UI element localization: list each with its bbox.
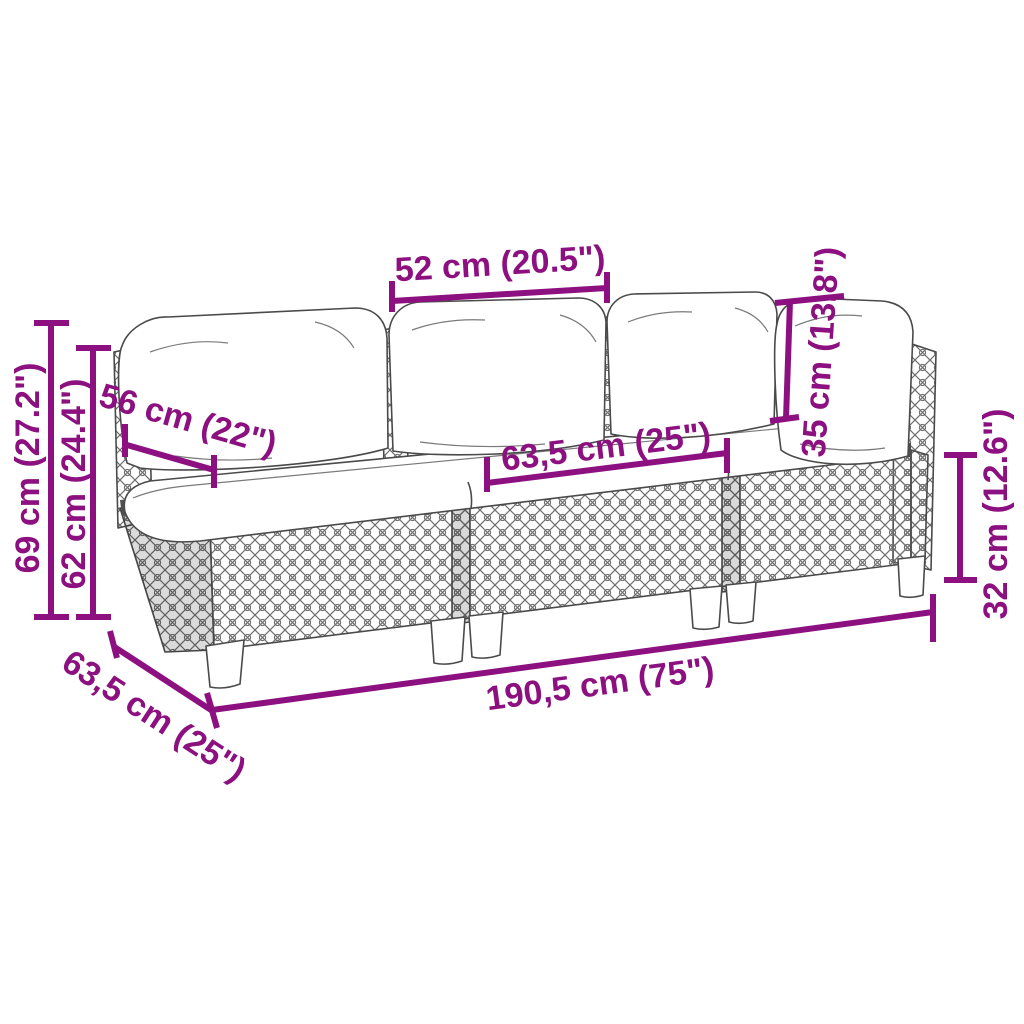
dimension-label-seat-height: 32 cm (12.6"): [979, 409, 1013, 620]
sofa-leg: [690, 586, 722, 629]
base-right-face: [911, 450, 928, 563]
module-joint-right-shade: [722, 462, 740, 592]
sofa-leg: [469, 612, 503, 658]
sofa-illustration: [0, 0, 1024, 1024]
dimension-label-back-frame-height: 62 cm (24.4"): [57, 379, 91, 590]
sofa-leg: [206, 640, 244, 688]
sofa-leg: [431, 617, 465, 664]
product-dimension-diagram: 52 cm (20.5") 35 cm (13.8") 69 cm (27.2"…: [0, 0, 1024, 1024]
sofa-leg: [726, 582, 756, 623]
dim-line-seat-height: [944, 455, 977, 580]
dimension-label-overall-height: 69 cm (27.2"): [11, 363, 45, 574]
sofa-leg: [898, 556, 925, 597]
